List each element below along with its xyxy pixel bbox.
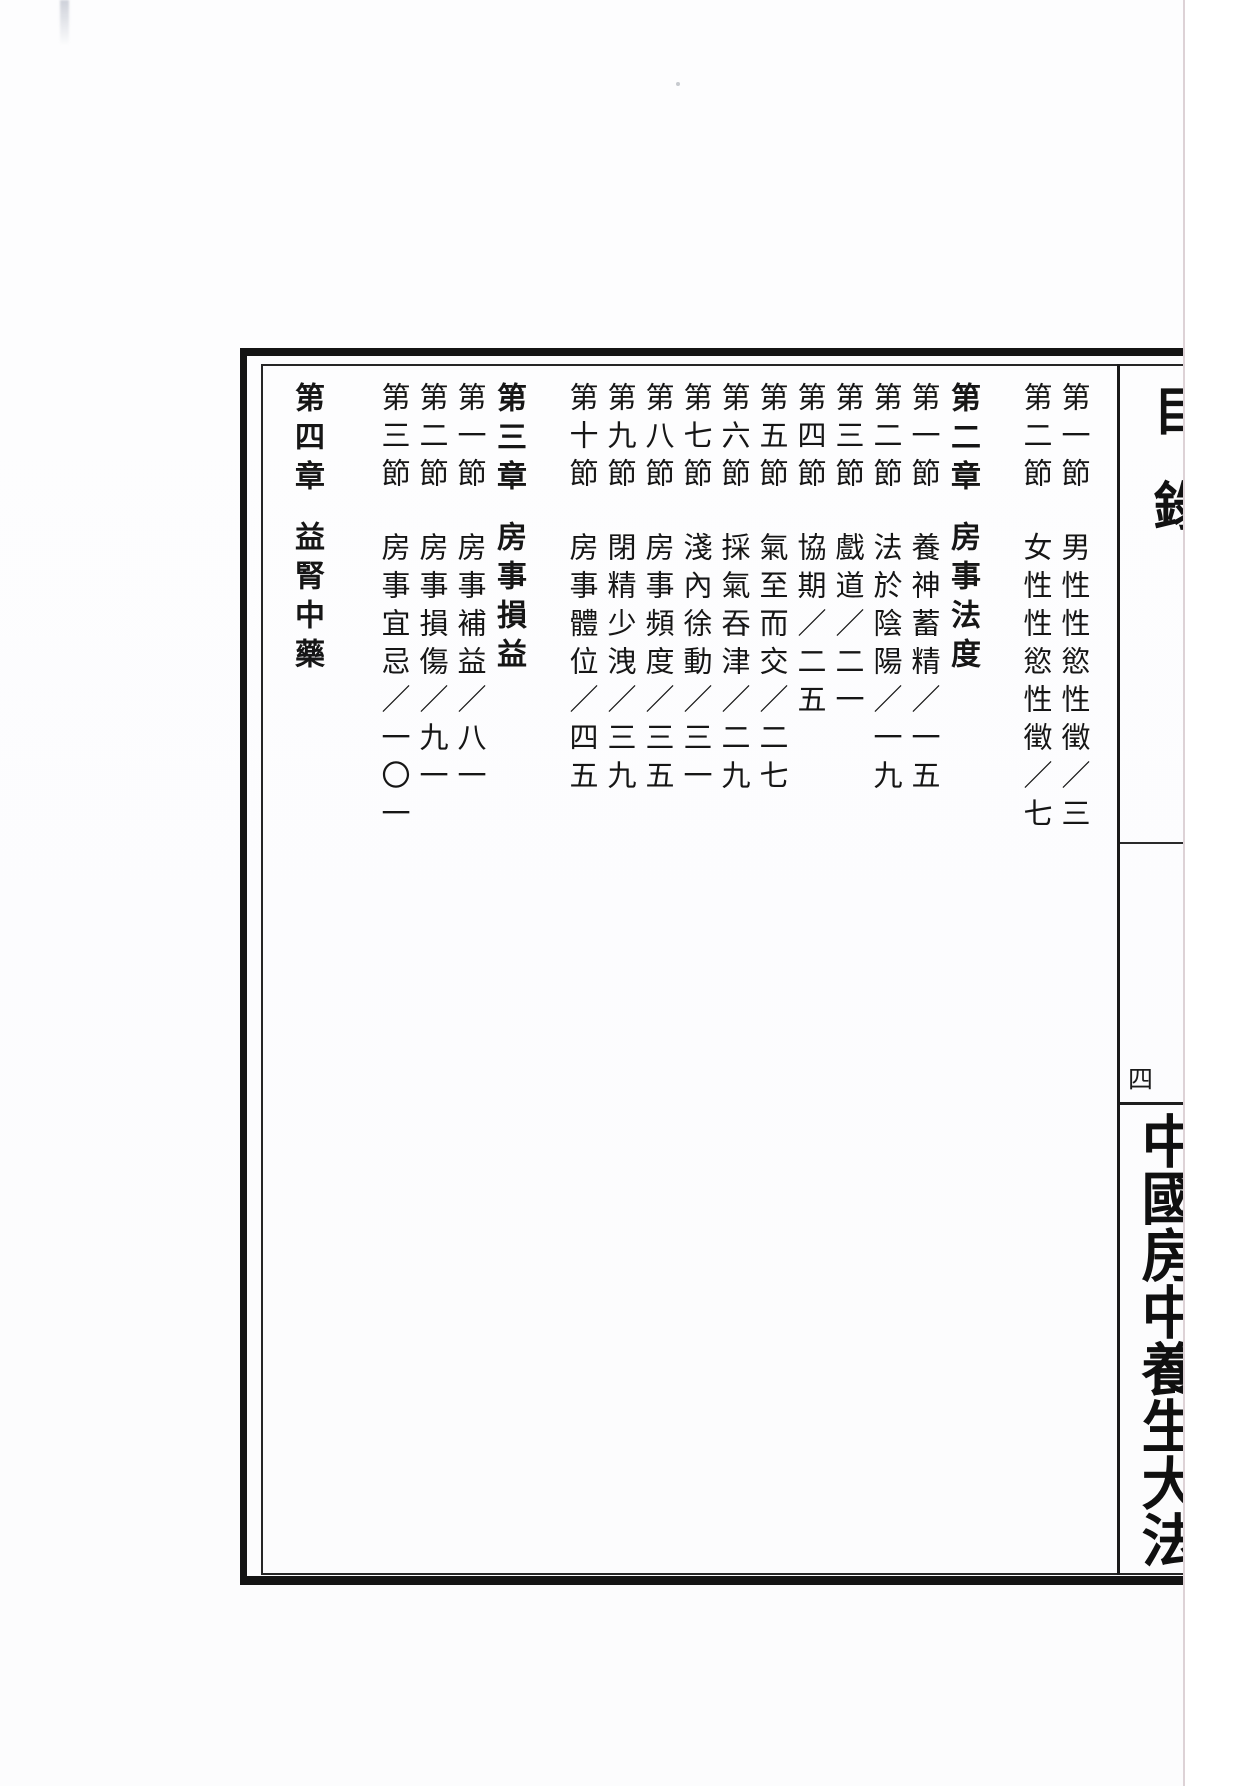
- toc-entry: 第一節養神蓄精／一五: [905, 382, 943, 1002]
- toc-entry-text: 房事損益: [491, 521, 526, 677]
- title-strip-rule: [1117, 364, 1120, 1575]
- scan-speck: [676, 82, 680, 86]
- toc-entry-text: 氣至而交／二七: [755, 532, 789, 798]
- strip-divider-upper: [1120, 842, 1184, 844]
- toc-entry-label: 第四章: [289, 382, 324, 499]
- toc-entry-text: 採氣吞津／二九: [717, 532, 751, 798]
- toc-chapter-entry: 第三章房事損益: [489, 382, 527, 1002]
- toc-entry-text: 房事體位／四五: [565, 532, 599, 798]
- toc-entry-label: 第十節: [565, 382, 599, 496]
- toc-chapter-entry: 第二章房事法度: [943, 382, 981, 1002]
- toc-entry-label: 第八節: [641, 382, 675, 496]
- toc-entry-label: 第五節: [755, 382, 789, 496]
- toc-entry: 第十節房事體位／四五: [563, 382, 601, 1002]
- toc-entry-text: 房事頻度／三五: [641, 532, 675, 798]
- folio-number: 四: [1128, 1060, 1153, 1096]
- scanned-page: 目錄 四 中國房中養生大法 第一節男性性慾性徵／三 第二節女性性慾性徵／七 第二…: [0, 0, 1253, 1786]
- toc-entry-label: 第六節: [717, 382, 751, 496]
- toc-entry-label: 第一節: [1057, 382, 1091, 496]
- toc-entry: 第八節房事頻度／三五: [639, 382, 677, 1002]
- scan-smudge: [60, 0, 69, 46]
- toc-entry: 第七節淺內徐動／三一: [677, 382, 715, 1002]
- toc-entry-text: 房事法度: [945, 521, 980, 677]
- toc-list: 第一節男性性慾性徵／三 第二節女性性慾性徵／七 第二章房事法度 第一節養神蓄精／…: [287, 382, 1093, 1002]
- toc-entry: 第二節法於陰陽／一九: [867, 382, 905, 1002]
- toc-entry-label: 第二節: [1019, 382, 1053, 496]
- toc-entry-label: 第九節: [603, 382, 637, 496]
- toc-entry: 第六節採氣吞津／二九: [715, 382, 753, 1002]
- toc-entry-text: 養神蓄精／一五: [907, 532, 941, 798]
- toc-entry-label: 第三節: [377, 382, 411, 496]
- toc-entry-text: 協期／二五: [793, 532, 827, 722]
- toc-entry-text: 男性性慾性徵／三: [1057, 532, 1091, 836]
- toc-entry-label: 第三章: [491, 382, 526, 499]
- toc-entry-text: 益腎中藥: [289, 521, 324, 677]
- toc-entry: 第一節男性性慾性徵／三: [1055, 382, 1093, 1002]
- toc-entry-text: 房事宜忌／一〇一: [377, 532, 411, 836]
- toc-entry-text: 女性性慾性徵／七: [1019, 532, 1053, 836]
- toc-entry: 第一節房事補益／八一: [451, 382, 489, 1002]
- toc-entry: 第九節閉精少洩／三九: [601, 382, 639, 1002]
- toc-entry: 第二節房事損傷／九一: [413, 382, 451, 1002]
- scan-binding-mask: [1185, 0, 1253, 1786]
- toc-entry-label: 第二節: [869, 382, 903, 496]
- scan-edge-line: [1183, 0, 1185, 1786]
- strip-divider-lower: [1120, 1102, 1184, 1105]
- toc-entry-label: 第三節: [831, 382, 865, 496]
- toc-entry-text: 房事補益／八一: [453, 532, 487, 798]
- toc-entry-label: 第二章: [945, 382, 980, 499]
- toc-entry-text: 房事損傷／九一: [415, 532, 449, 798]
- toc-entry-text: 閉精少洩／三九: [603, 532, 637, 798]
- toc-entry-label: 第四節: [793, 382, 827, 496]
- toc-entry-text: 戲道／二一: [831, 532, 865, 722]
- toc-entry: 第二節女性性慾性徵／七: [1017, 382, 1055, 1002]
- toc-chapter-entry: 第四章益腎中藥: [287, 382, 325, 1002]
- toc-entry-text: 法於陰陽／一九: [869, 532, 903, 798]
- toc-entry-label: 第二節: [415, 382, 449, 496]
- toc-entry-text: 淺內徐動／三一: [679, 532, 713, 798]
- toc-entry-label: 第七節: [679, 382, 713, 496]
- toc-entry: 第三節戲道／二一: [829, 382, 867, 1002]
- toc-entry: 第五節氣至而交／二七: [753, 382, 791, 1002]
- toc-entry-label: 第一節: [907, 382, 941, 496]
- toc-entry: 第三節房事宜忌／一〇一: [375, 382, 413, 1002]
- toc-entry-label: 第一節: [453, 382, 487, 496]
- toc-entry: 第四節協期／二五: [791, 382, 829, 1002]
